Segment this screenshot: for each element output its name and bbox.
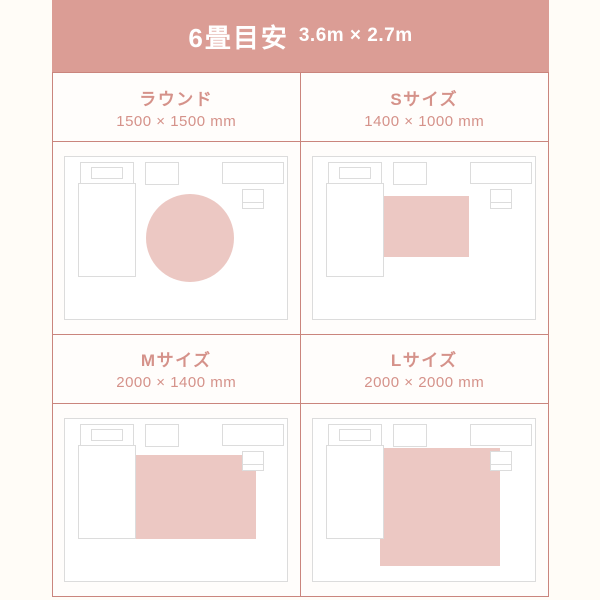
tv-stand <box>146 162 179 184</box>
cell-title: Lサイズ 2000 × 2000 mm <box>301 335 549 404</box>
bed <box>79 445 136 538</box>
size-cell-size-l: Lサイズ 2000 × 2000 mm <box>301 335 549 597</box>
size-cell-size-s: Sサイズ 1400 × 1000 mm <box>301 73 549 335</box>
rug-size-m <box>136 455 256 539</box>
rug-size-guide: 6畳目安 3.6m × 2.7m ラウンド 1500 × 1500 mm Sサイ… <box>0 0 600 600</box>
room-floorplan <box>312 418 536 582</box>
room-diagram <box>53 142 300 334</box>
rug-round <box>146 194 234 282</box>
room-diagram <box>301 404 549 597</box>
desk <box>471 162 532 183</box>
cell-title: Sサイズ 1400 × 1000 mm <box>301 73 549 142</box>
cell-size: 2000 × 2000 mm <box>364 374 484 391</box>
room-diagram <box>53 404 300 597</box>
bed <box>327 183 384 276</box>
tv-stand <box>394 424 427 446</box>
cell-label: Mサイズ <box>141 346 212 371</box>
cell-label: ラウンド <box>139 85 213 110</box>
room-floorplan <box>312 156 536 320</box>
chair <box>243 451 264 470</box>
bed-pillow <box>340 167 371 178</box>
desk <box>223 424 284 445</box>
chair <box>491 451 512 470</box>
header-title: 6畳目安 <box>188 18 288 55</box>
header-banner: 6畳目安 3.6m × 2.7m <box>52 0 549 72</box>
chair <box>243 189 264 208</box>
cell-title: ラウンド 1500 × 1500 mm <box>53 73 300 142</box>
cell-size: 2000 × 1400 mm <box>116 374 236 391</box>
bed-pillow <box>92 167 123 178</box>
bed-pillow <box>340 429 371 440</box>
cell-size: 1500 × 1500 mm <box>116 113 236 130</box>
guide-panel: 6畳目安 3.6m × 2.7m ラウンド 1500 × 1500 mm Sサイ… <box>52 0 549 597</box>
bed-pillow <box>92 429 123 440</box>
header-room-dimensions: 3.6m × 2.7m <box>299 25 413 47</box>
desk <box>223 162 284 183</box>
size-grid: ラウンド 1500 × 1500 mm Sサイズ 1400 × 1000 mm … <box>52 72 549 597</box>
room-diagram <box>301 142 549 334</box>
size-cell-size-m: Mサイズ 2000 × 1400 mm <box>53 335 301 597</box>
chair <box>491 189 512 208</box>
rug-size-l <box>380 448 500 566</box>
cell-title: Mサイズ 2000 × 1400 mm <box>53 335 300 404</box>
tv-stand <box>146 424 179 446</box>
bed <box>79 183 136 276</box>
desk <box>471 424 532 445</box>
bed <box>327 445 384 538</box>
cell-size: 1400 × 1000 mm <box>364 113 484 130</box>
rug-size-s <box>384 196 469 257</box>
tv-stand <box>394 162 427 184</box>
room-floorplan <box>64 418 288 582</box>
cell-label: Lサイズ <box>391 346 458 371</box>
size-cell-round: ラウンド 1500 × 1500 mm <box>53 73 301 335</box>
room-floorplan <box>64 156 288 320</box>
cell-label: Sサイズ <box>390 85 458 110</box>
